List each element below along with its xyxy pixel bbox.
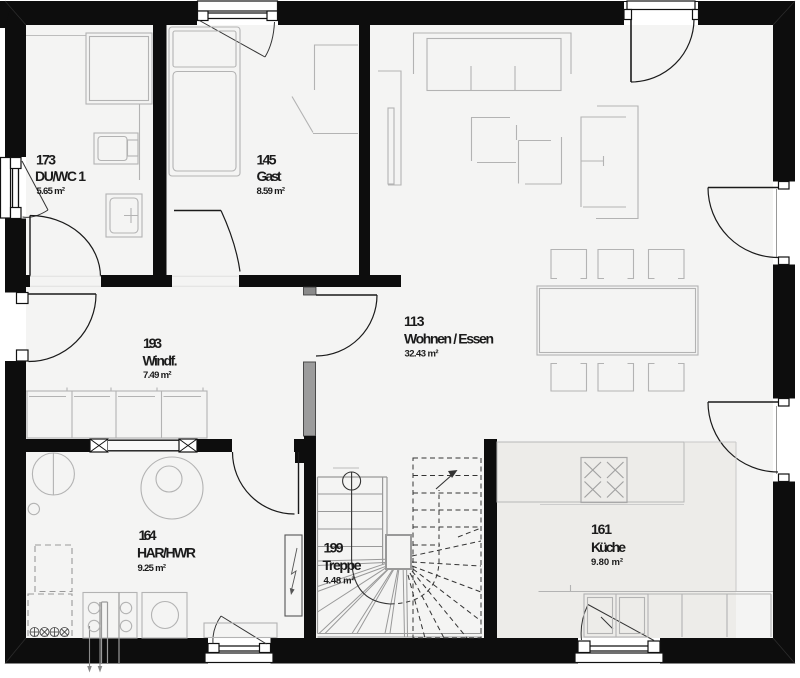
svg-text:145: 145 — [257, 152, 277, 168]
svg-text:113: 113 — [404, 313, 425, 329]
svg-text:8.59 m²: 8.59 m² — [257, 186, 286, 197]
svg-text:Wohnen / Essen: Wohnen / Essen — [404, 331, 494, 347]
svg-text:199: 199 — [324, 540, 344, 556]
svg-text:193: 193 — [143, 335, 162, 351]
svg-text:Küche: Küche — [591, 539, 626, 555]
svg-text:Gast: Gast — [257, 168, 282, 184]
svg-text:161: 161 — [591, 521, 612, 537]
svg-text:Windf.: Windf. — [143, 353, 178, 369]
svg-text:9.80 m²: 9.80 m² — [591, 557, 623, 568]
svg-text:173: 173 — [36, 152, 56, 168]
svg-text:9.25 m²: 9.25 m² — [138, 563, 167, 574]
svg-text:HAR/HWR: HAR/HWR — [137, 545, 196, 561]
svg-text:5.65 m²: 5.65 m² — [37, 186, 66, 197]
svg-text:32.43 m²: 32.43 m² — [405, 349, 439, 360]
svg-text:7.49 m²: 7.49 m² — [143, 370, 172, 381]
svg-text:Treppe: Treppe — [323, 557, 362, 573]
svg-text:164: 164 — [139, 527, 157, 543]
svg-text:4.48 m²: 4.48 m² — [324, 576, 355, 587]
svg-text:DU/WC 1: DU/WC 1 — [35, 168, 86, 184]
